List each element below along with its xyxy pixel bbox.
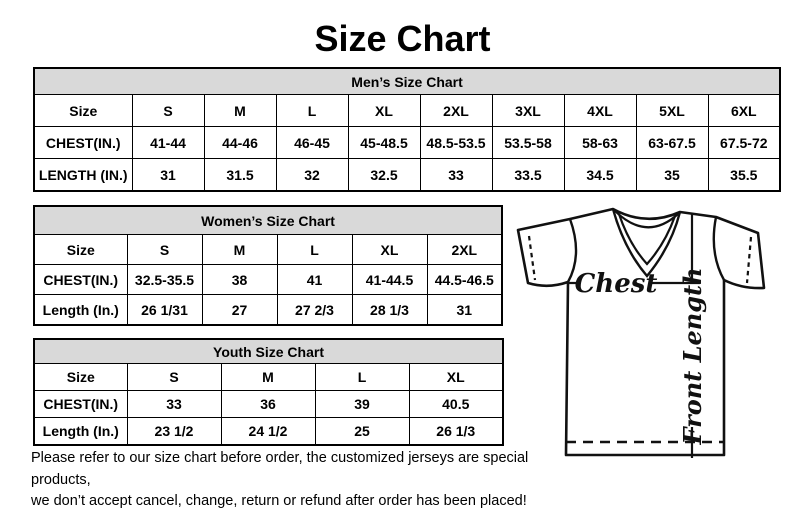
length-value: 35	[636, 159, 708, 192]
tshirt-outline	[518, 209, 764, 455]
table-row: Length (In.) 26 1/31 27 27 2/3 28 1/3 31	[34, 295, 502, 326]
chest-value: 44.5-46.5	[427, 265, 502, 295]
table-row: CHEST(IN.) 33 36 39 40.5	[34, 391, 503, 418]
row-label: Length (In.)	[34, 295, 127, 326]
length-value: 27	[202, 295, 277, 326]
footer-note: Please refer to our size chart before or…	[31, 448, 546, 513]
chest-value: 33	[127, 391, 221, 418]
length-value: 31	[427, 295, 502, 326]
chest-label: Chest	[575, 269, 658, 299]
size-col-header: XL	[348, 95, 420, 127]
row-label: Length (In.)	[34, 418, 127, 446]
mens-table-title: Men’s Size Chart	[34, 68, 780, 95]
chest-value: 44-46	[204, 127, 276, 159]
womens-table-title: Women’s Size Chart	[34, 206, 502, 235]
length-value: 33	[420, 159, 492, 192]
length-value: 23 1/2	[127, 418, 221, 446]
chest-value: 58-63	[564, 127, 636, 159]
table-row: Size S M L XL 2XL	[34, 235, 502, 265]
size-col-header: XL	[409, 364, 503, 391]
length-value: 32.5	[348, 159, 420, 192]
size-col-header: M	[221, 364, 315, 391]
chest-value: 41	[277, 265, 352, 295]
length-value: 26 1/3	[409, 418, 503, 446]
size-col-header: L	[315, 364, 409, 391]
table-row: Youth Size Chart	[34, 339, 503, 364]
row-label: CHEST(IN.)	[34, 265, 127, 295]
row-label: LENGTH (IN.)	[34, 159, 132, 192]
youth-size-table: Youth Size Chart Size S M L XL CHEST(IN.…	[33, 338, 504, 446]
chest-value: 45-48.5	[348, 127, 420, 159]
chest-value: 38	[202, 265, 277, 295]
front-length-label: Front Length	[678, 267, 707, 445]
chest-value: 46-45	[276, 127, 348, 159]
size-col-header: 2XL	[420, 95, 492, 127]
row-label: CHEST(IN.)	[34, 127, 132, 159]
size-col-header: XL	[352, 235, 427, 265]
chest-value: 40.5	[409, 391, 503, 418]
chest-value: 32.5-35.5	[127, 265, 202, 295]
table-row: Size S M L XL 2XL 3XL 4XL 5XL 6XL	[34, 95, 780, 127]
row-label: CHEST(IN.)	[34, 391, 127, 418]
length-value: 31.5	[204, 159, 276, 192]
table-row: Men’s Size Chart	[34, 68, 780, 95]
size-col-header: 4XL	[564, 95, 636, 127]
chest-value: 67.5-72	[708, 127, 780, 159]
chest-value: 53.5-58	[492, 127, 564, 159]
size-col-header: M	[204, 95, 276, 127]
table-row: Length (In.) 23 1/2 24 1/2 25 26 1/3	[34, 418, 503, 446]
table-row: CHEST(IN.) 32.5-35.5 38 41 41-44.5 44.5-…	[34, 265, 502, 295]
size-col-header: L	[276, 95, 348, 127]
size-col-header: M	[202, 235, 277, 265]
page-title: Size Chart	[0, 18, 805, 60]
chest-value: 36	[221, 391, 315, 418]
mens-size-table: Men’s Size Chart Size S M L XL 2XL 3XL 4…	[33, 67, 781, 192]
size-col-header: S	[127, 235, 202, 265]
footer-note-line2: we don’t accept cancel, change, return o…	[31, 491, 546, 513]
length-value: 34.5	[564, 159, 636, 192]
length-value: 33.5	[492, 159, 564, 192]
chest-value: 41-44.5	[352, 265, 427, 295]
table-row: CHEST(IN.) 41-44 44-46 46-45 45-48.5 48.…	[34, 127, 780, 159]
size-col-header: Size	[34, 235, 127, 265]
womens-size-table: Women’s Size Chart Size S M L XL 2XL CHE…	[33, 205, 503, 326]
length-value: 31	[132, 159, 204, 192]
length-value: 27 2/3	[277, 295, 352, 326]
chest-value: 41-44	[132, 127, 204, 159]
size-col-header: 3XL	[492, 95, 564, 127]
size-col-header: 6XL	[708, 95, 780, 127]
tshirt-measurement-diagram: Chest Front Length	[508, 193, 800, 493]
size-chart-page: { "page": { "title": "Size Chart" }, "co…	[0, 0, 805, 512]
size-col-header: 5XL	[636, 95, 708, 127]
table-row: LENGTH (IN.) 31 31.5 32 32.5 33 33.5 34.…	[34, 159, 780, 192]
size-col-header: L	[277, 235, 352, 265]
size-col-header: 2XL	[427, 235, 502, 265]
chest-value: 48.5-53.5	[420, 127, 492, 159]
footer-note-line1: Please refer to our size chart before or…	[31, 448, 546, 491]
length-value: 32	[276, 159, 348, 192]
table-row: Women’s Size Chart	[34, 206, 502, 235]
size-col-header: S	[127, 364, 221, 391]
size-col-header: Size	[34, 95, 132, 127]
length-value: 28 1/3	[352, 295, 427, 326]
length-value: 26 1/31	[127, 295, 202, 326]
tshirt-diagram-svg: Chest Front Length	[508, 193, 800, 493]
chest-value: 39	[315, 391, 409, 418]
youth-table-title: Youth Size Chart	[34, 339, 503, 364]
size-col-header: S	[132, 95, 204, 127]
length-value: 24 1/2	[221, 418, 315, 446]
table-row: Size S M L XL	[34, 364, 503, 391]
length-value: 35.5	[708, 159, 780, 192]
chest-value: 63-67.5	[636, 127, 708, 159]
length-value: 25	[315, 418, 409, 446]
size-col-header: Size	[34, 364, 127, 391]
